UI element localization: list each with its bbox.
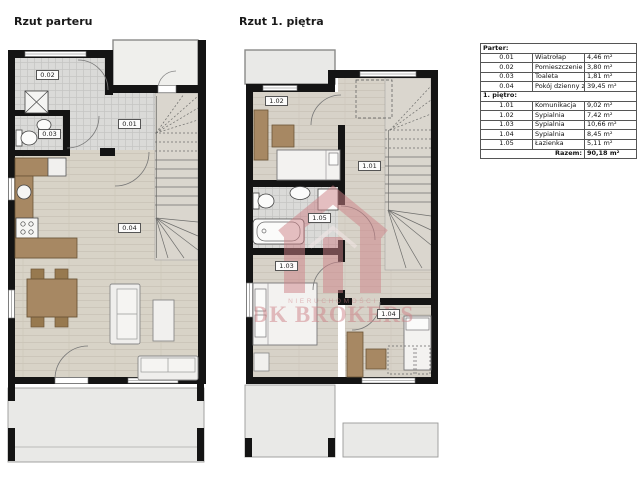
area-table: Parter: 0.01 Wiatrołap 4,46 m² 0.02 Pomi…: [480, 43, 637, 159]
section-header: Parter:: [481, 44, 637, 54]
sofa: [138, 356, 198, 380]
room-label-0-03: 0.03: [38, 129, 61, 139]
table-row: 0.02 Pomieszczenie gospodarcze 3,80 m²: [481, 63, 637, 73]
table-row: 1.03 Sypialnia 10,66 m²: [481, 120, 637, 130]
room-label-1-05: 1.05: [308, 213, 331, 223]
upper-plan-title: Rzut 1. piętra: [239, 15, 324, 28]
entrance-canopy: [113, 40, 198, 89]
house-monogram-icon: [283, 195, 383, 293]
room-label-1-01: 1.01: [358, 161, 381, 171]
room-label-1-02: 1.02: [265, 96, 288, 106]
table-total-row: Razem: 90,18 m²: [481, 149, 637, 159]
tv-stand: [153, 300, 174, 341]
terrace: [8, 384, 204, 462]
table-row: 1.04 Sypialnia 8,45 m²: [481, 130, 637, 140]
table-row: 0.04 Pokój dzienny z aneksem 39,45 m²: [481, 82, 637, 92]
table-row: 1.05 Łazienka 5,11 m²: [481, 139, 637, 149]
table-row: 1.01 Komunikacja 9,02 m²: [481, 101, 637, 111]
room-label-0-02: 0.02: [36, 70, 59, 80]
room-label-1-03: 1.03: [275, 261, 298, 271]
table-row: 0.03 Toaleta 1,81 m²: [481, 72, 637, 82]
section-header: 1. piętro:: [481, 91, 637, 101]
table-row: 0.01 Wiatrołap 4,46 m²: [481, 53, 637, 63]
room-label-1-04: 1.04: [377, 309, 400, 319]
ground-plan-title: Rzut parteru: [14, 15, 93, 28]
couch: [110, 284, 140, 344]
table-section-parter: Parter:: [481, 44, 637, 54]
room-label-0-01: 0.01: [118, 119, 141, 129]
watermark-logo: NIERUCHOMOŚCI DK BROKERS: [255, 178, 420, 328]
table-section-pietro: 1. piętro:: [481, 91, 637, 101]
table-row: 1.02 Sypialnia 7,42 m²: [481, 111, 637, 121]
washing-machine: [25, 91, 48, 113]
room-label-0-04: 0.04: [118, 223, 141, 233]
ground-floor-plan: [0, 36, 232, 470]
